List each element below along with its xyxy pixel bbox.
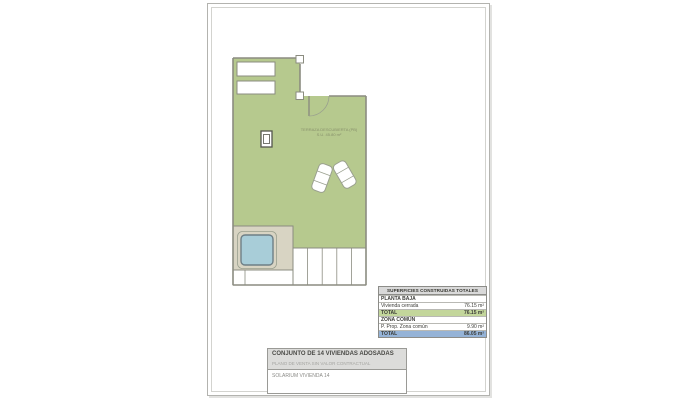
wall-pillar-top	[296, 56, 304, 64]
row-label: TOTAL	[379, 310, 397, 316]
row-label: TOTAL	[379, 331, 397, 337]
row-label: PLANTA BAJA	[379, 296, 416, 302]
row-value: 76.15 m²	[464, 303, 486, 309]
fixture-box	[261, 131, 272, 147]
row-value: 76.15 m²	[464, 310, 486, 316]
planter-box-2	[237, 81, 275, 94]
row-value	[484, 296, 486, 302]
title-block-header: CONJUNTO DE 14 VIVIENDAS ADOSADAS PLANO …	[268, 349, 406, 370]
row-value: 86.05 m²	[464, 331, 486, 337]
title-block-body: SOLARIUM VIVIENDA 14	[268, 370, 406, 382]
table-row: P. Prop. Zona común 9.90 m²	[379, 323, 486, 330]
lower-step	[233, 270, 293, 285]
row-label: P. Prop. Zona común	[379, 324, 428, 330]
row-label: Vivienda cerrada	[379, 303, 418, 309]
table-row: TOTAL 86.05 m²	[379, 330, 486, 337]
row-value	[484, 317, 486, 323]
floor-plan: TERRAZA DESCUBIERTA (PB) S.U. 45.80 m²	[0, 0, 700, 400]
stairs	[293, 248, 366, 285]
drawing-title: SOLARIUM VIVIENDA 14	[272, 373, 402, 379]
pool	[241, 235, 273, 265]
row-label: ZONA COMÚN	[379, 317, 415, 323]
title-block: CONJUNTO DE 14 VIVIENDAS ADOSADAS PLANO …	[267, 348, 407, 394]
areas-table: SUPERFICIES CONSTRUIDAS TOTALES PLANTA B…	[378, 286, 487, 338]
row-value: 9.90 m²	[467, 324, 486, 330]
page-canvas: TERRAZA DESCUBIERTA (PB) S.U. 45.80 m² S…	[0, 0, 700, 400]
table-row: Vivienda cerrada 76.15 m²	[379, 302, 486, 309]
disclaimer-text: PLANO DE VENTA SIN VALOR CONTRACTUAL	[272, 361, 402, 366]
planter-box-1	[237, 62, 275, 76]
terrace-label-line2: S.U. 45.80 m²	[317, 132, 342, 137]
table-row: PLANTA BAJA	[379, 295, 486, 302]
table-row: TOTAL 76.15 m²	[379, 309, 486, 316]
wall-pillar-bottom	[296, 92, 304, 100]
project-title: CONJUNTO DE 14 VIVIENDAS ADOSADAS	[272, 351, 402, 358]
table-row: ZONA COMÚN	[379, 316, 486, 323]
areas-table-title: SUPERFICIES CONSTRUIDAS TOTALES	[379, 287, 486, 295]
